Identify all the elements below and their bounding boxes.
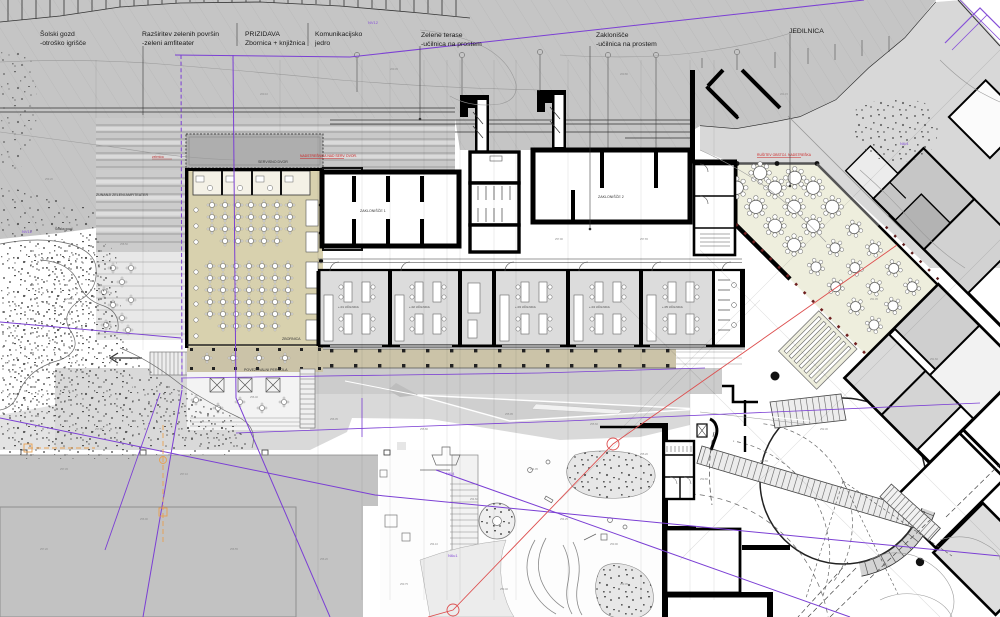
svg-text:-učilnica na prostem: -učilnica na prostem	[596, 41, 657, 48]
svg-text:Zaklonišče: Zaklonišče	[596, 32, 629, 39]
svg-text:PRIZIDAVA: PRIZIDAVA	[245, 31, 280, 38]
svg-text:255.80: 255.80	[420, 427, 428, 431]
svg-text:252.30: 252.30	[820, 427, 828, 431]
svg-text:257.65: 257.65	[640, 237, 648, 241]
svg-text:251.60: 251.60	[930, 357, 938, 361]
svg-text:+.05 UČILNICA: +.05 UČILNICA	[662, 304, 683, 309]
svg-text:256.55: 256.55	[230, 547, 238, 551]
svg-text:258.15: 258.15	[66, 297, 74, 301]
svg-text:RUŠITEV OBSTOJ. NADSTREŠKA: RUŠITEV OBSTOJ. NADSTREŠKA	[757, 152, 812, 157]
svg-text:NADSTREŠNICA NAD SERV. DVOR.: NADSTREŠNICA NAD SERV. DVOR.	[300, 153, 357, 158]
svg-text:254.60: 254.60	[470, 497, 478, 501]
svg-text:253.40: 253.40	[500, 587, 508, 591]
svg-text:252.80: 252.80	[700, 477, 708, 481]
svg-text:+.04 UČILNICA: +.04 UČILNICA	[589, 304, 610, 309]
svg-text:257.80: 257.80	[95, 427, 103, 431]
svg-text:Komunikacijsko: Komunikacijsko	[315, 31, 362, 38]
svg-text:+.03 UČILNICA: +.03 UČILNICA	[515, 304, 536, 309]
svg-text:NV12: NV12	[368, 20, 379, 25]
svg-text:POVEZOVALNI PERGOLA: POVEZOVALNI PERGOLA	[244, 368, 288, 372]
svg-text:256.05: 256.05	[330, 417, 338, 421]
svg-text:+.02 UČILNICA: +.02 UČILNICA	[409, 304, 430, 309]
svg-text:260.80: 260.80	[620, 72, 628, 76]
svg-text:Šolski gozd: Šolski gozd	[40, 29, 75, 38]
svg-text:zelenica: zelenica	[152, 155, 164, 159]
svg-text:253.75: 253.75	[400, 582, 408, 586]
svg-text:261.15: 261.15	[780, 92, 788, 96]
svg-text:260.45: 260.45	[390, 67, 398, 71]
svg-text:Zelene terase: Zelene terase	[421, 32, 463, 39]
svg-text:258.50: 258.50	[120, 242, 128, 246]
svg-text:SERVISNO DVOR: SERVISNO DVOR	[258, 160, 288, 164]
svg-text:N6I4: N6I4	[446, 471, 455, 476]
svg-text:253.90: 253.90	[610, 542, 618, 546]
svg-text:-učilnica na prostem: -učilnica na prostem	[421, 41, 482, 48]
svg-text:255.60: 255.60	[590, 422, 598, 426]
svg-text:254.25: 254.25	[560, 517, 568, 521]
svg-text:257.90: 257.90	[555, 237, 563, 241]
svg-text:-otroško igrišče: -otroško igrišče	[40, 40, 86, 47]
svg-text:255.20: 255.20	[640, 452, 648, 456]
svg-text:Šolska gozd: Šolska gozd	[55, 226, 73, 231]
svg-text:253.05: 253.05	[620, 582, 628, 586]
svg-text:N6/4: N6/4	[900, 141, 909, 146]
svg-text:256.40: 256.40	[250, 395, 258, 399]
svg-text:252.55: 252.55	[760, 459, 768, 463]
svg-text:Zbornica + knjižnica: Zbornica + knjižnica	[245, 40, 305, 47]
svg-text:254.10: 254.10	[430, 542, 438, 546]
svg-text:256.90: 256.90	[140, 517, 148, 521]
svg-text:+.01 UČILNICA: +.01 UČILNICA	[338, 304, 359, 309]
svg-text:NV1Z: NV1Z	[22, 229, 33, 234]
svg-text:Razširitev zelenih površin: Razširitev zelenih površin	[142, 31, 219, 38]
svg-text:ZUNANJI ZELENI AMFITEATER: ZUNANJI ZELENI AMFITEATER	[96, 193, 148, 197]
svg-text:259.20: 259.20	[45, 177, 53, 181]
svg-text:-zeleni amfiteater: -zeleni amfiteater	[142, 40, 195, 47]
svg-text:251.95: 251.95	[870, 297, 878, 301]
svg-text:JEDILNICA: JEDILNICA	[789, 28, 824, 35]
svg-text:255.95: 255.95	[505, 412, 513, 416]
svg-text:254.95: 254.95	[530, 467, 538, 471]
svg-text:260.10: 260.10	[260, 92, 268, 96]
svg-text:257.10: 257.10	[180, 472, 188, 476]
svg-text:ZBORNICA: ZBORNICA	[282, 337, 301, 341]
svg-text:jedro: jedro	[314, 40, 330, 47]
svg-text:ZAKLONIŠČE 2: ZAKLONIŠČE 2	[598, 194, 624, 199]
svg-text:256.20: 256.20	[320, 557, 328, 561]
svg-text:ZAKLONIŠČE 1: ZAKLONIŠČE 1	[360, 208, 386, 213]
svg-text:257.20: 257.20	[40, 547, 48, 551]
svg-text:N6u1: N6u1	[448, 553, 458, 558]
svg-text:257.45: 257.45	[60, 467, 68, 471]
